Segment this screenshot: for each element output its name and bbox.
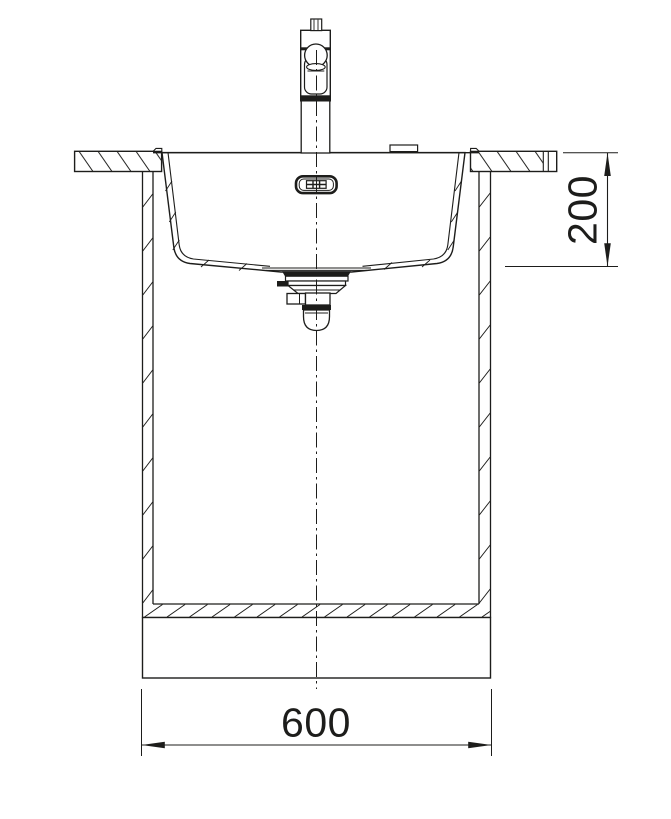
bowl-depth-label: 200 xyxy=(560,175,606,245)
countertop-left xyxy=(75,148,162,171)
tap-lever xyxy=(311,19,322,31)
sink-rim-clip-right xyxy=(471,148,479,151)
cabinet-wall-right xyxy=(479,172,491,618)
bowl-outer-shell xyxy=(162,153,465,272)
overflow-connector-tab xyxy=(277,281,288,287)
tap-spout-dish xyxy=(307,64,326,71)
cabinet-wall-left xyxy=(143,172,154,618)
waste-body xyxy=(306,293,331,305)
drain-waste-assembly xyxy=(277,271,351,330)
cabinet-width-label: 600 xyxy=(281,700,351,746)
sink-section-diagram: 200 600 xyxy=(0,0,671,819)
waste-side-box xyxy=(287,294,306,305)
tap-riser-column xyxy=(301,101,330,153)
tap-hole-cover xyxy=(390,145,418,152)
arrow-right-icon xyxy=(468,742,491,749)
tap-base-band xyxy=(301,95,331,100)
arrow-left-icon xyxy=(142,742,165,749)
sink-rim-clip-left xyxy=(153,148,162,151)
dimension-cabinet-width: 600 xyxy=(142,689,492,756)
mixer-tap xyxy=(301,19,331,153)
sink-technical-drawing-page: 200 600 xyxy=(0,0,671,819)
arrow-down-icon xyxy=(604,243,611,266)
arrow-up-icon xyxy=(604,153,611,176)
